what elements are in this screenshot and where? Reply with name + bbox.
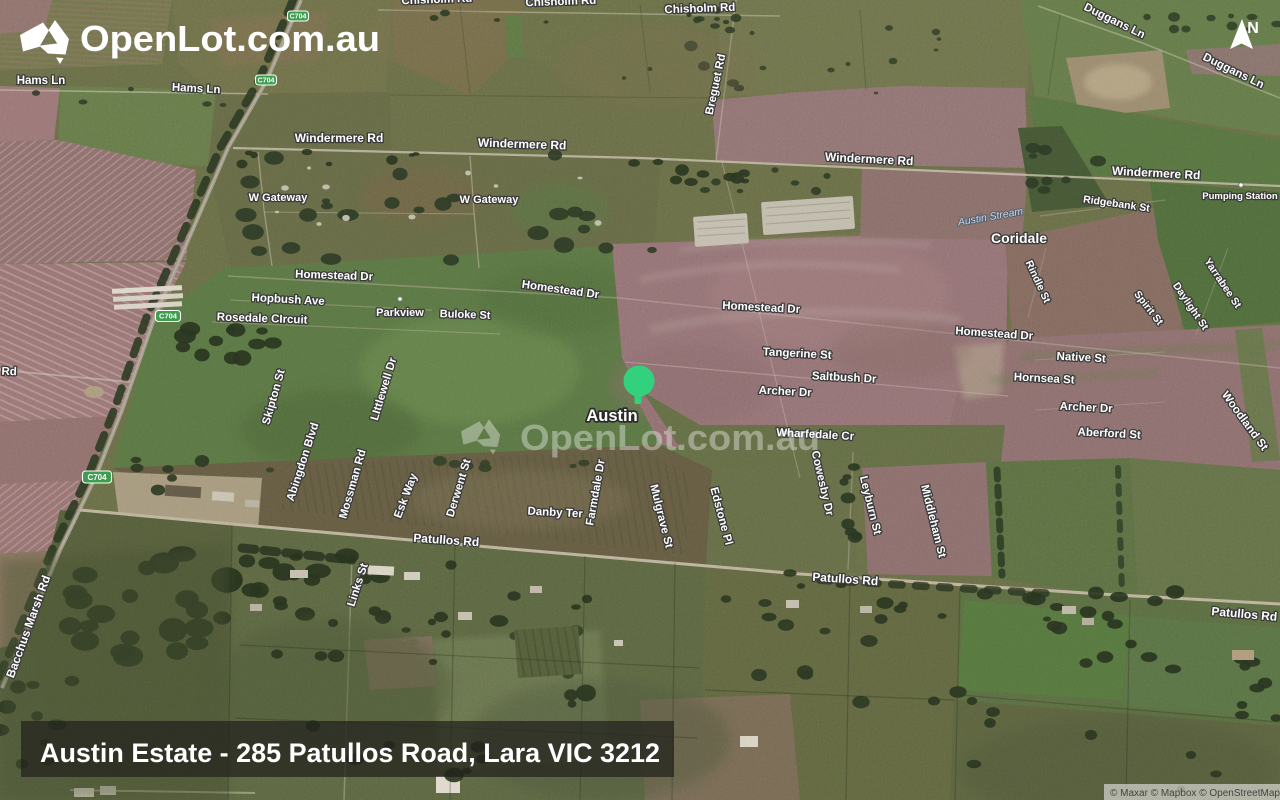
svg-text:Rd: Rd [1, 366, 17, 379]
svg-text:Windermere Rd: Windermere Rd [295, 131, 384, 145]
svg-text:Austin Estate - 285 Patullos R: Austin Estate - 285 Patullos Road, Lara … [40, 738, 660, 768]
svg-text:N: N [1247, 20, 1259, 37]
svg-text:C704: C704 [159, 312, 178, 321]
svg-text:W Gateway: W Gateway [249, 192, 309, 204]
svg-text:OpenLot.com.au: OpenLot.com.au [520, 417, 820, 458]
svg-text:Chisholm Rd: Chisholm Rd [664, 2, 735, 16]
svg-text:© Maxar © Mapbox © OpenStreetM: © Maxar © Mapbox © OpenStreetMap [1110, 788, 1280, 799]
svg-text:Pumping Station: Pumping Station [1202, 191, 1278, 202]
svg-text:W Gateway: W Gateway [460, 194, 520, 206]
svg-text:Buloke St: Buloke St [440, 308, 491, 322]
svg-text:Hams Ln: Hams Ln [17, 75, 66, 87]
svg-text:C704: C704 [258, 78, 275, 85]
svg-text:Coridale: Coridale [991, 230, 1047, 246]
svg-text:OpenLot.com.au: OpenLot.com.au [80, 18, 380, 59]
svg-text:Hams Ln: Hams Ln [172, 82, 221, 97]
svg-text:Parkview: Parkview [376, 307, 424, 319]
svg-text:C704: C704 [87, 473, 107, 482]
